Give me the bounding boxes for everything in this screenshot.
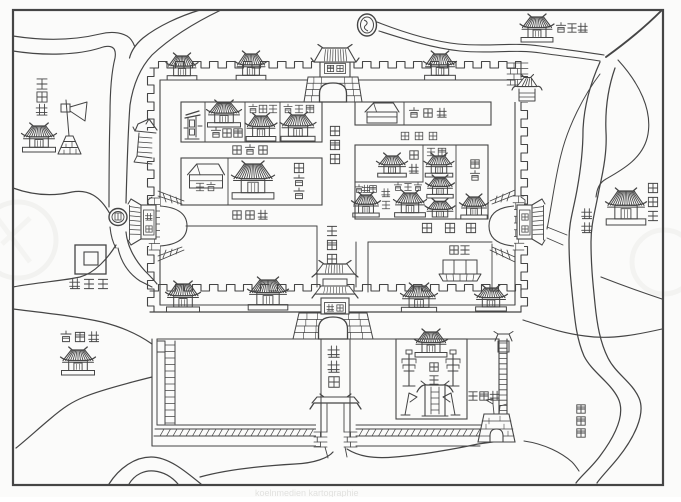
svg-text:koelnmedien kartographie: koelnmedien kartographie xyxy=(255,488,359,497)
